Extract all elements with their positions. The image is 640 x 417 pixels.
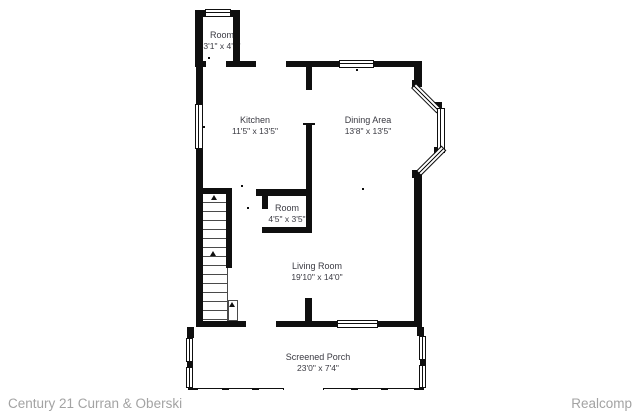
door-marker <box>247 207 249 209</box>
porch-screen-panel <box>186 338 193 362</box>
porch-screen-panel <box>419 365 426 388</box>
wall <box>196 61 203 327</box>
footer-bar: Century 21 Curran & Oberski Realcomp <box>0 390 640 417</box>
porch-screen-panel <box>419 336 426 360</box>
porch-wall-post <box>417 327 424 336</box>
room-label-dining-area: Dining Area 13'8" x 13'5" <box>328 115 408 137</box>
door-marker <box>203 126 205 128</box>
floorplan-canvas: Room 3'1" x 4'1" Kitchen 11'5" x 13'5" D… <box>0 0 640 417</box>
listing-office-credit: Century 21 Curran & Oberski <box>8 396 182 411</box>
wall <box>262 195 268 209</box>
stair-direction-arrow <box>229 302 235 307</box>
room-dimensions: 13'8" x 13'5" <box>328 126 408 137</box>
door-marker <box>241 185 243 187</box>
staircase-treads <box>203 194 227 321</box>
realcomp-watermark: Realcomp <box>571 396 632 411</box>
opening-tick-marker <box>303 123 315 125</box>
room-label-kitchen: Kitchen 11'5" x 13'5" <box>215 115 295 137</box>
room-label-living-room: Living Room 19'10" x 14'0" <box>277 261 357 283</box>
room-name: Dining Area <box>328 115 408 126</box>
room-name: Screened Porch <box>278 352 358 363</box>
window <box>195 104 203 149</box>
wall <box>196 321 246 327</box>
wall <box>233 10 240 67</box>
room-name: Living Room <box>277 261 357 272</box>
wall <box>414 174 422 327</box>
wall <box>195 10 203 67</box>
room-dimensions: 19'10" x 14'0" <box>277 272 357 283</box>
stair-direction-arrow <box>211 195 217 200</box>
window <box>205 9 231 17</box>
wall <box>305 298 312 323</box>
wall <box>306 61 312 90</box>
bay-window-segment <box>416 146 446 176</box>
wall <box>226 188 232 268</box>
floor-plan: Room 3'1" x 4'1" Kitchen 11'5" x 13'5" D… <box>0 0 640 417</box>
room-dimensions: 11'5" x 13'5" <box>215 126 295 137</box>
door-marker <box>362 188 364 190</box>
wall <box>262 227 312 233</box>
wall <box>226 61 256 67</box>
porch-wall-post <box>187 327 194 338</box>
room-name: Kitchen <box>215 115 295 126</box>
window <box>337 320 378 328</box>
window <box>339 60 374 68</box>
stair-direction-arrow <box>210 251 216 256</box>
room-dimensions: 23'0" x 7'4" <box>278 363 358 374</box>
wall <box>306 124 312 190</box>
porch-screen-panel <box>186 367 193 388</box>
door-marker <box>356 69 358 71</box>
room-label-screened-porch: Screened Porch 23'0" x 7'4" <box>278 352 358 374</box>
door-marker <box>208 57 210 59</box>
